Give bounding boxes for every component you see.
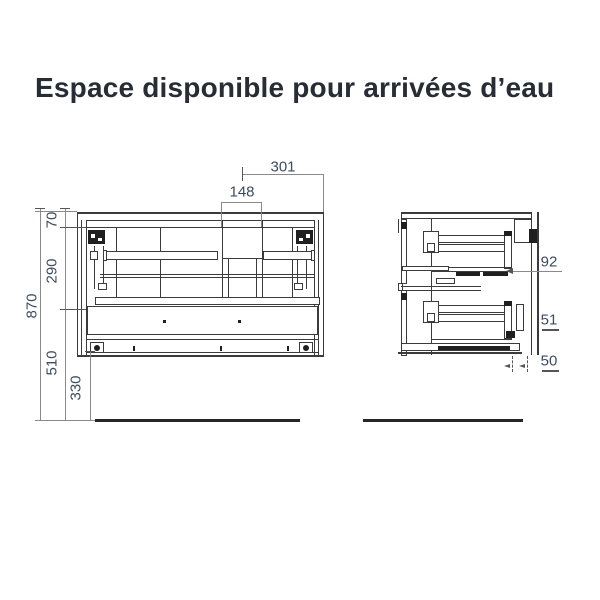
upper-drawer-bracket-detail [427,243,435,252]
strut-line [292,228,293,304]
upper-drawer-slide-strip [483,272,508,276]
glide-tick [287,346,289,351]
dim-arrow-50 [504,364,510,368]
lower-drawer-bottom-line [431,339,512,340]
dim-line-148 [221,202,262,203]
dim-51-label: 51 [541,313,558,328]
cabinet-left-wall [77,220,87,356]
cabinet-right-wall [314,220,324,356]
rail-band-right [263,251,315,260]
upper-drawer-rail [438,235,508,243]
drain-shaft-inner-left [228,258,229,302]
page-title: Espace disponible pour arrivées d’eau [35,72,554,104]
dim-line-70-290-510 [65,209,66,421]
dim-50-label: 50 [541,354,558,369]
lower-drawer-rail [438,305,508,313]
dim-tick [60,208,70,209]
divider-line [401,286,481,287]
dim-underline-50 [542,370,559,372]
cabinet-left-wall-inner-line [81,220,82,356]
panel-screw-dot [238,320,241,323]
back-wall-slot [516,304,524,331]
upper-drawer-back-bar [504,231,512,269]
drawer-front-panel [87,306,318,335]
rail-endcap-right [311,250,315,261]
divider-slot [436,278,455,284]
glide-tick [133,346,135,351]
dim-ext-301-right [323,174,324,212]
side-back-rail-block [529,229,537,243]
dim-148-label: 148 [229,185,254,200]
side-bottom-edge [398,352,522,354]
cabinet-right-wall-inner-line [318,220,319,356]
dim-870-label: 870 [25,293,40,318]
dim-ext-148-left [221,202,222,227]
drawer-front-lower-cap [401,293,407,300]
side-top-band [401,212,539,219]
divider-line [401,290,481,291]
dim-underline-51 [542,329,559,331]
diagram-canvas: Espace disponible pour arrivées d’eau [0,0,600,600]
dim-line-92 [512,271,562,272]
dim-arrow-50 [519,364,525,368]
dim-dash-50 [512,356,513,372]
lower-drawer-back-cap [504,301,512,306]
dim-ext-148-right [261,202,262,227]
strut-line [116,228,117,304]
drain-shaft-left-line [222,220,223,301]
rail-thin-line [100,277,314,278]
cabinet-bottom-outer-line [77,355,324,357]
dim-arrow-92 [506,268,513,274]
dim-tick [242,167,243,181]
slide-block-left [88,230,105,244]
upper-drawer-rail [438,244,509,252]
panel-under-line [87,339,318,340]
rail-endcap-left [103,250,107,261]
cabinet-top-band [77,212,324,221]
dim-70-label: 70 [45,212,60,229]
dim-tick [85,351,95,352]
rail-thin-line [100,274,314,275]
panel-screw-dot [163,320,166,323]
lower-drawer-bracket-detail [427,313,435,322]
drawer-front-upper-cap [401,222,407,229]
bracket-left-detail [90,251,98,260]
drain-shaft-right-line [262,220,263,301]
dim-510-label: 510 [45,350,60,375]
lower-drawer-rail [438,314,509,322]
dim-330-label: 330 [69,375,84,400]
dim-290-label: 290 [45,258,60,283]
floor-line-side [363,419,523,422]
floor-line-front [95,419,300,422]
dim-line-330 [90,352,91,421]
dim-92-label: 92 [541,255,558,270]
upper-drawer-back-cap [504,231,512,236]
dim-301-label: 301 [270,160,295,175]
bracket-left-foot [98,283,107,290]
cabinet-bottom-inner-line [86,352,318,353]
glide-tick [220,346,222,351]
bracket-right-foot [294,283,303,290]
strut-line [160,228,161,304]
dim-dash-50 [527,356,528,372]
dim-tick [35,208,45,209]
slide-block-right [296,230,313,244]
rail-band-left [106,251,218,260]
dim-tick [60,309,86,310]
upper-drawer-front-shelf [402,266,449,271]
side-bottom-band [401,343,520,351]
front-edge-notch [398,219,399,233]
cabinet-inner-top-line [87,227,314,228]
dim-tick [60,227,86,228]
drain-shaft-inner-right [256,258,257,302]
dim-ext-floor [35,420,95,421]
upper-drawer-slide-strip [456,272,480,276]
lower-drawer-stop-block [506,331,515,338]
drawer-top-band [95,297,320,305]
